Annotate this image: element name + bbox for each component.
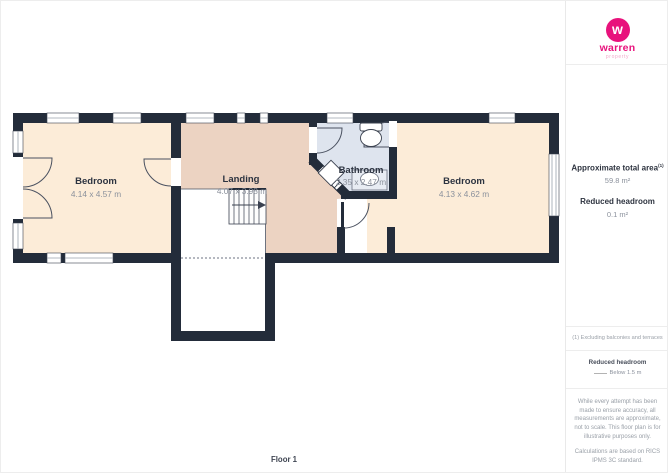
legend-line-icon	[594, 373, 607, 374]
footnote-text: (1) Excluding balconies and terraces	[566, 335, 668, 342]
approx-area-value: 59.8 m²	[566, 176, 668, 185]
room-dims-bedroom-left: 4.14 x 4.57 m	[71, 189, 121, 199]
floorplan-drawing: Bedroom 4.14 x 4.57 m Landing 4.07 x 3.9…	[1, 1, 565, 473]
room-dims-landing: 4.07 x 3.98 m	[217, 186, 267, 196]
floorplan-page: Bedroom 4.14 x 4.57 m Landing 4.07 x 3.9…	[0, 0, 668, 473]
room-label-bedroom-right: Bedroom	[443, 176, 485, 187]
disclaimer-text-1: While every attempt has been made to ens…	[574, 398, 662, 441]
toilet-bowl-icon	[361, 130, 382, 147]
room-label-landing: Landing	[223, 174, 260, 185]
info-sidebar: w warren property Approximate total area…	[565, 1, 668, 473]
footnote-marker: (1)	[658, 163, 664, 168]
room-dims-bathroom: 2.35 x 2.47 m	[336, 177, 386, 187]
area-summary-section: Approximate total area(1) 59.8 m² Reduce…	[566, 65, 668, 327]
reduced-headroom-value: 0.1 m²	[566, 210, 668, 219]
room-bedroom-right	[397, 123, 549, 253]
warren-logo-icon: w	[606, 18, 630, 42]
legend-section: Reduced headroom Below 1.5 m	[566, 351, 668, 389]
room-bedroom-left	[23, 123, 171, 253]
agency-logo-section: w warren property	[566, 1, 668, 65]
floor-label: Floor 1	[271, 455, 298, 464]
room-dims-bedroom-right: 4.13 x 4.62 m	[439, 189, 489, 199]
agency-brand-name: warren	[566, 43, 668, 54]
legend-title: Reduced headroom	[566, 359, 668, 366]
room-label-bathroom: Bathroom	[339, 165, 384, 176]
disclaimer-section: While every attempt has been made to ens…	[566, 389, 668, 473]
approx-area-label: Approximate total area(1)	[566, 163, 668, 173]
reduced-headroom-label: Reduced headroom	[566, 197, 668, 207]
disclaimer-text-2: Calculations are based on RICS IPMS 3C s…	[574, 448, 662, 465]
legend-item-label: Below 1.5 m	[610, 370, 642, 376]
agency-brand-subtitle: property	[566, 55, 668, 60]
room-label-bedroom-left: Bedroom	[75, 176, 117, 187]
footnote-section: (1) Excluding balconies and terraces	[566, 327, 668, 351]
